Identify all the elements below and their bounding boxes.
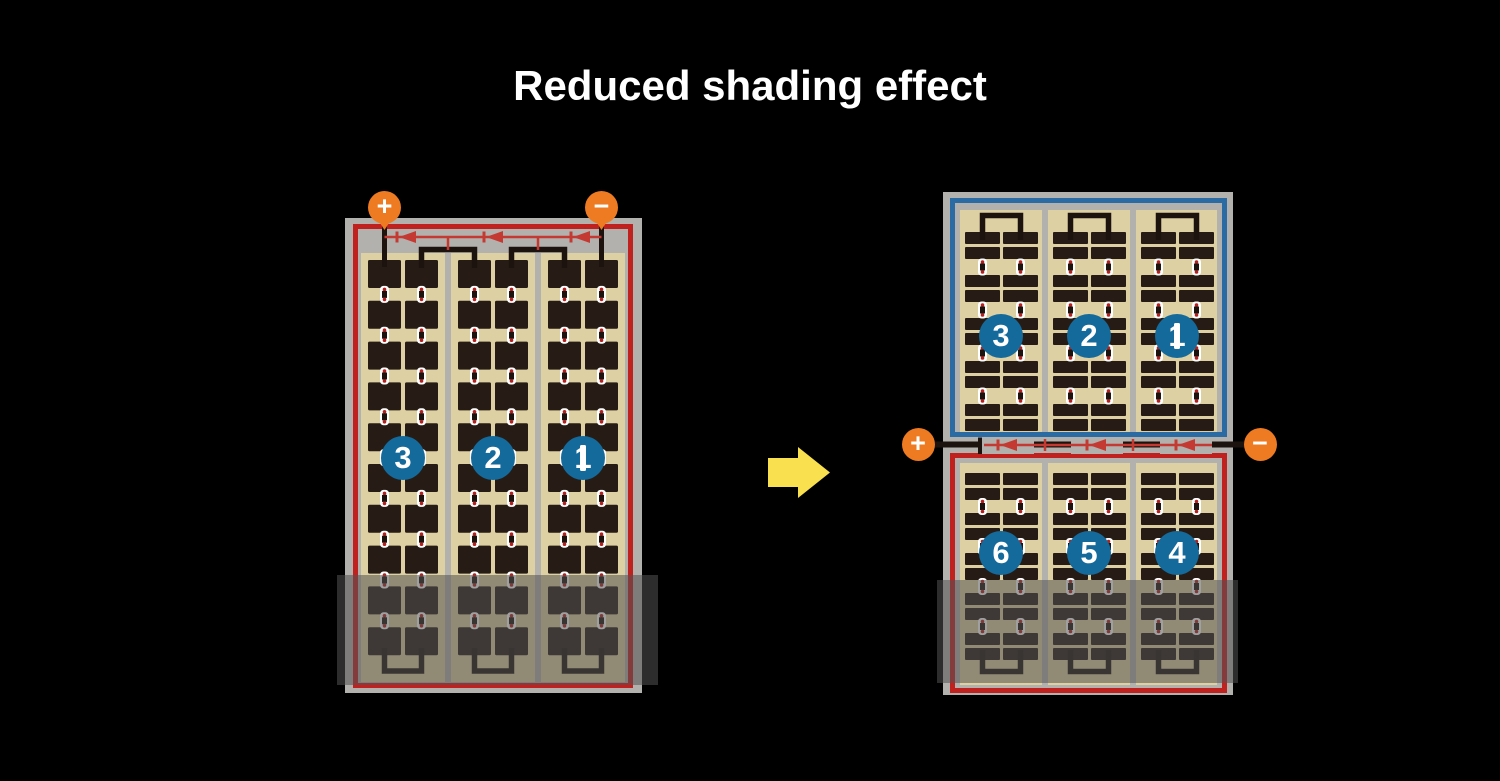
- right-top-string-circle-1: 1: [1155, 314, 1199, 358]
- right-top-string-circle-3: 3: [979, 314, 1023, 358]
- left-negative-terminal: −: [585, 191, 618, 224]
- right-negative-terminal: −: [1244, 428, 1277, 461]
- left-shading-overlay: [337, 575, 658, 685]
- transform-arrow-icon: [768, 447, 830, 498]
- right-bottom-string-circle-4: 4: [1155, 531, 1199, 575]
- string-divider: [1042, 210, 1048, 433]
- right-top-string-circle-2: 2: [1067, 314, 1111, 358]
- left-string-circle-1: 1: [561, 436, 605, 480]
- right-module: [918, 192, 1260, 695]
- right-bottom-string-circle-5: 5: [1067, 531, 1111, 575]
- left-positive-terminal: +: [368, 191, 401, 224]
- right-bottom-string-circle-6: 6: [979, 531, 1023, 575]
- diagram-graphic: [0, 0, 1500, 781]
- right-positive-terminal: +: [902, 428, 935, 461]
- left-string-circle-3: 3: [381, 436, 425, 480]
- string-divider: [1130, 210, 1136, 433]
- right-shading-overlay: [937, 580, 1238, 683]
- left-string-circle-2: 2: [471, 436, 515, 480]
- reduced-shading-diagram: Reduced shading effect + − + − 3 2 1 3 2…: [0, 0, 1500, 781]
